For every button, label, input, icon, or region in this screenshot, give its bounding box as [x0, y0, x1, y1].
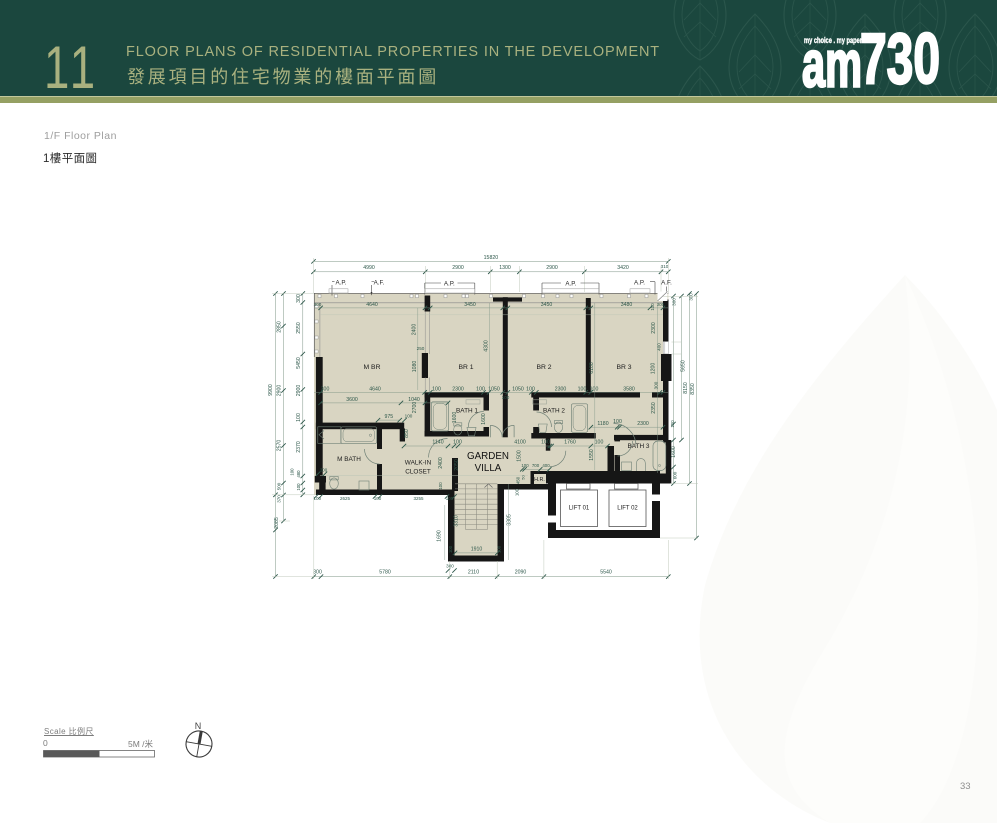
svg-text:700: 700 — [532, 463, 540, 468]
svg-text:VILLA: VILLA — [475, 463, 502, 474]
svg-text:100: 100 — [432, 386, 441, 392]
svg-text:15820: 15820 — [484, 255, 499, 261]
svg-text:100: 100 — [438, 482, 443, 490]
svg-text:8350: 8350 — [690, 383, 696, 395]
svg-text:4640: 4640 — [369, 386, 381, 392]
svg-text:300: 300 — [314, 302, 322, 307]
svg-text:4300: 4300 — [483, 340, 489, 352]
svg-text:N: N — [195, 721, 202, 731]
svg-text:1500: 1500 — [516, 450, 522, 462]
svg-text:300: 300 — [320, 467, 328, 472]
svg-text:100: 100 — [290, 468, 295, 476]
svg-text:300: 300 — [321, 386, 330, 392]
svg-text:300: 300 — [296, 294, 302, 303]
svg-text:2900: 2900 — [452, 265, 464, 271]
svg-text:310: 310 — [661, 264, 669, 269]
svg-text:A.P.: A.P. — [634, 279, 645, 286]
svg-text:2300: 2300 — [555, 386, 567, 392]
svg-text:3580: 3580 — [623, 386, 635, 392]
svg-text:A.F.: A.F. — [374, 279, 385, 286]
svg-text:am: am — [802, 27, 862, 97]
svg-text:250: 250 — [417, 346, 425, 351]
svg-text:3600: 3600 — [346, 397, 358, 403]
svg-text:BATH 1: BATH 1 — [456, 408, 478, 415]
svg-text:4990: 4990 — [363, 265, 375, 271]
svg-text:100: 100 — [515, 488, 520, 496]
svg-text:2900: 2900 — [546, 265, 558, 271]
svg-text:1200: 1200 — [651, 363, 657, 375]
svg-text:LIFT 01: LIFT 01 — [569, 506, 590, 512]
svg-text:850: 850 — [404, 429, 410, 438]
svg-text:300: 300 — [446, 564, 454, 569]
svg-text:3450: 3450 — [541, 302, 553, 308]
svg-text:100: 100 — [476, 386, 485, 392]
svg-text:1140: 1140 — [432, 440, 443, 446]
svg-text:200: 200 — [657, 302, 665, 307]
svg-text:100: 100 — [296, 483, 301, 491]
svg-text:2850: 2850 — [277, 321, 283, 333]
svg-text:2625: 2625 — [340, 496, 351, 501]
svg-text:300: 300 — [654, 381, 659, 389]
svg-text:2400: 2400 — [412, 324, 418, 336]
svg-text:A.P.: A.P. — [336, 279, 347, 286]
svg-text:1690: 1690 — [437, 530, 443, 542]
svg-text:3480: 3480 — [621, 302, 633, 308]
svg-text:2400: 2400 — [438, 457, 444, 469]
svg-text:2700: 2700 — [412, 402, 418, 414]
svg-text:3305: 3305 — [507, 514, 513, 526]
svg-text:2900: 2900 — [277, 385, 283, 397]
svg-text:975: 975 — [385, 414, 394, 420]
svg-text:5780: 5780 — [379, 570, 391, 576]
svg-text:100: 100 — [613, 419, 622, 425]
svg-text:100: 100 — [521, 463, 529, 468]
svg-text:400: 400 — [657, 343, 662, 351]
svg-text:8150: 8150 — [683, 382, 689, 394]
svg-text:3450: 3450 — [464, 302, 476, 308]
svg-text:BR 1: BR 1 — [458, 364, 473, 371]
svg-text:300: 300 — [672, 298, 677, 306]
svg-text:2900: 2900 — [296, 385, 302, 397]
svg-text:730: 730 — [860, 20, 940, 96]
svg-text:BR 3: BR 3 — [616, 364, 631, 371]
svg-text:A.P.: A.P. — [565, 280, 576, 287]
svg-text:1910: 1910 — [471, 547, 483, 553]
svg-text:2300: 2300 — [452, 386, 464, 392]
svg-text:3420: 3420 — [617, 265, 629, 271]
svg-text:1080: 1080 — [412, 361, 418, 373]
svg-text:2300: 2300 — [651, 322, 657, 334]
svg-text:1550: 1550 — [589, 449, 595, 461]
svg-text:5450: 5450 — [296, 357, 302, 369]
svg-text:50: 50 — [520, 475, 525, 480]
svg-text:500: 500 — [277, 482, 282, 490]
svg-text:100: 100 — [590, 386, 599, 392]
svg-text:1760: 1760 — [564, 440, 576, 446]
svg-text:2085: 2085 — [274, 517, 280, 529]
svg-text:1600: 1600 — [452, 412, 458, 424]
svg-text:A.P.: A.P. — [444, 280, 455, 287]
svg-text:A.F.: A.F. — [661, 279, 672, 286]
svg-text:2110: 2110 — [468, 570, 479, 576]
svg-text:1050: 1050 — [512, 386, 524, 392]
svg-text:1050: 1050 — [488, 386, 500, 392]
svg-text:100: 100 — [296, 413, 302, 422]
svg-text:300: 300 — [689, 293, 694, 301]
svg-text:M BATH: M BATH — [337, 456, 361, 463]
svg-text:100: 100 — [650, 303, 655, 311]
svg-text:2350: 2350 — [651, 402, 657, 414]
svg-text:BATH 2: BATH 2 — [543, 408, 565, 415]
svg-text:1600: 1600 — [481, 413, 487, 425]
svg-text:3310: 3310 — [454, 515, 460, 527]
svg-text:100: 100 — [595, 440, 604, 446]
svg-text:M BR: M BR — [364, 364, 381, 371]
svg-text:5650: 5650 — [680, 360, 686, 372]
svg-text:CLOSET: CLOSET — [405, 469, 431, 476]
svg-text:100: 100 — [453, 440, 462, 446]
svg-text:100: 100 — [670, 420, 675, 428]
svg-text:LIFT 02: LIFT 02 — [617, 506, 638, 512]
svg-text:BATH 3: BATH 3 — [628, 443, 650, 450]
svg-text:6100: 6100 — [589, 362, 595, 374]
svg-text:2050: 2050 — [454, 459, 460, 471]
svg-text:400: 400 — [542, 463, 550, 468]
svg-text:H.R.: H.R. — [534, 477, 545, 483]
svg-text:2090: 2090 — [515, 570, 527, 576]
svg-text:370: 370 — [277, 495, 282, 503]
svg-text:5540: 5540 — [600, 570, 612, 576]
svg-text:GARDEN: GARDEN — [467, 451, 509, 462]
svg-text:BR 2: BR 2 — [536, 364, 551, 371]
svg-text:1300: 1300 — [499, 265, 511, 271]
svg-text:100: 100 — [541, 440, 550, 446]
svg-text:100: 100 — [578, 386, 587, 392]
svg-text:9900: 9900 — [268, 384, 274, 396]
svg-text:100: 100 — [502, 395, 510, 400]
svg-text:2570: 2570 — [277, 440, 283, 452]
svg-text:3255: 3255 — [413, 496, 424, 501]
svg-text:2370: 2370 — [296, 441, 302, 453]
svg-text:100: 100 — [496, 545, 501, 553]
svg-text:2300: 2300 — [637, 421, 649, 427]
svg-text:4100: 4100 — [514, 440, 526, 446]
svg-text:300: 300 — [313, 570, 322, 576]
svg-text:480: 480 — [296, 470, 301, 478]
svg-text:100: 100 — [526, 386, 535, 392]
svg-text:WALK-IN: WALK-IN — [405, 460, 432, 467]
svg-text:600: 600 — [672, 471, 677, 479]
svg-text:100: 100 — [448, 545, 453, 553]
svg-text:4640: 4640 — [366, 302, 378, 308]
svg-text:2550: 2550 — [296, 322, 302, 334]
svg-text:1180: 1180 — [597, 421, 608, 427]
svg-text:1600: 1600 — [671, 446, 677, 458]
